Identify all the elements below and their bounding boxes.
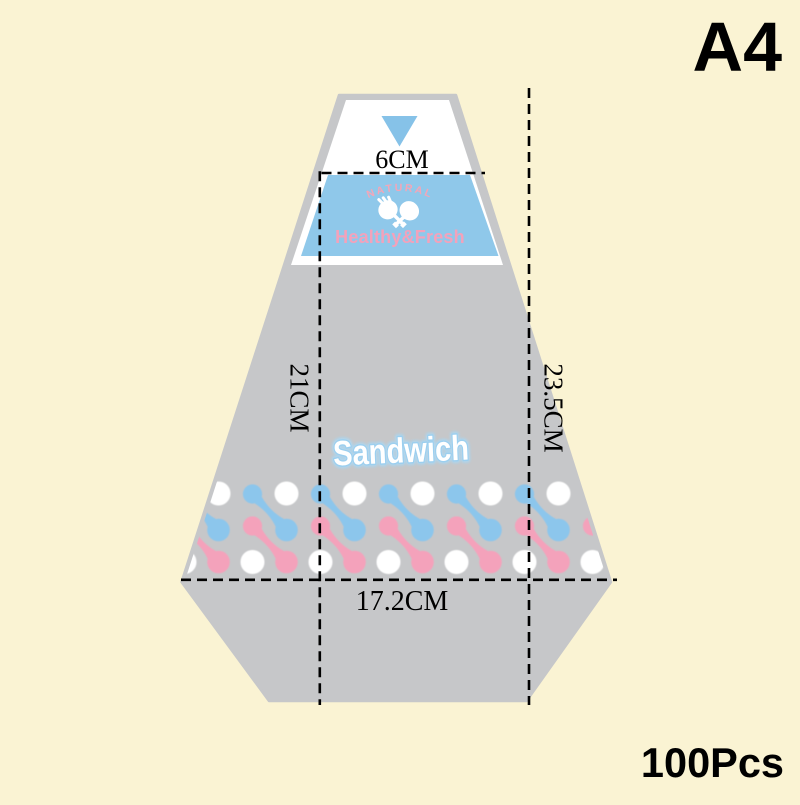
svg-text:A4: A4: [693, 8, 783, 86]
svg-text:21CM: 21CM: [284, 363, 314, 432]
svg-text:Sandwich: Sandwich: [332, 429, 470, 474]
svg-text:100Pcs: 100Pcs: [641, 739, 784, 786]
svg-text:Healthy&Fresh: Healthy&Fresh: [335, 227, 465, 247]
svg-text:6CM: 6CM: [375, 145, 428, 174]
svg-text:23.5CM: 23.5CM: [538, 363, 568, 452]
svg-text:17.2CM: 17.2CM: [356, 586, 449, 617]
